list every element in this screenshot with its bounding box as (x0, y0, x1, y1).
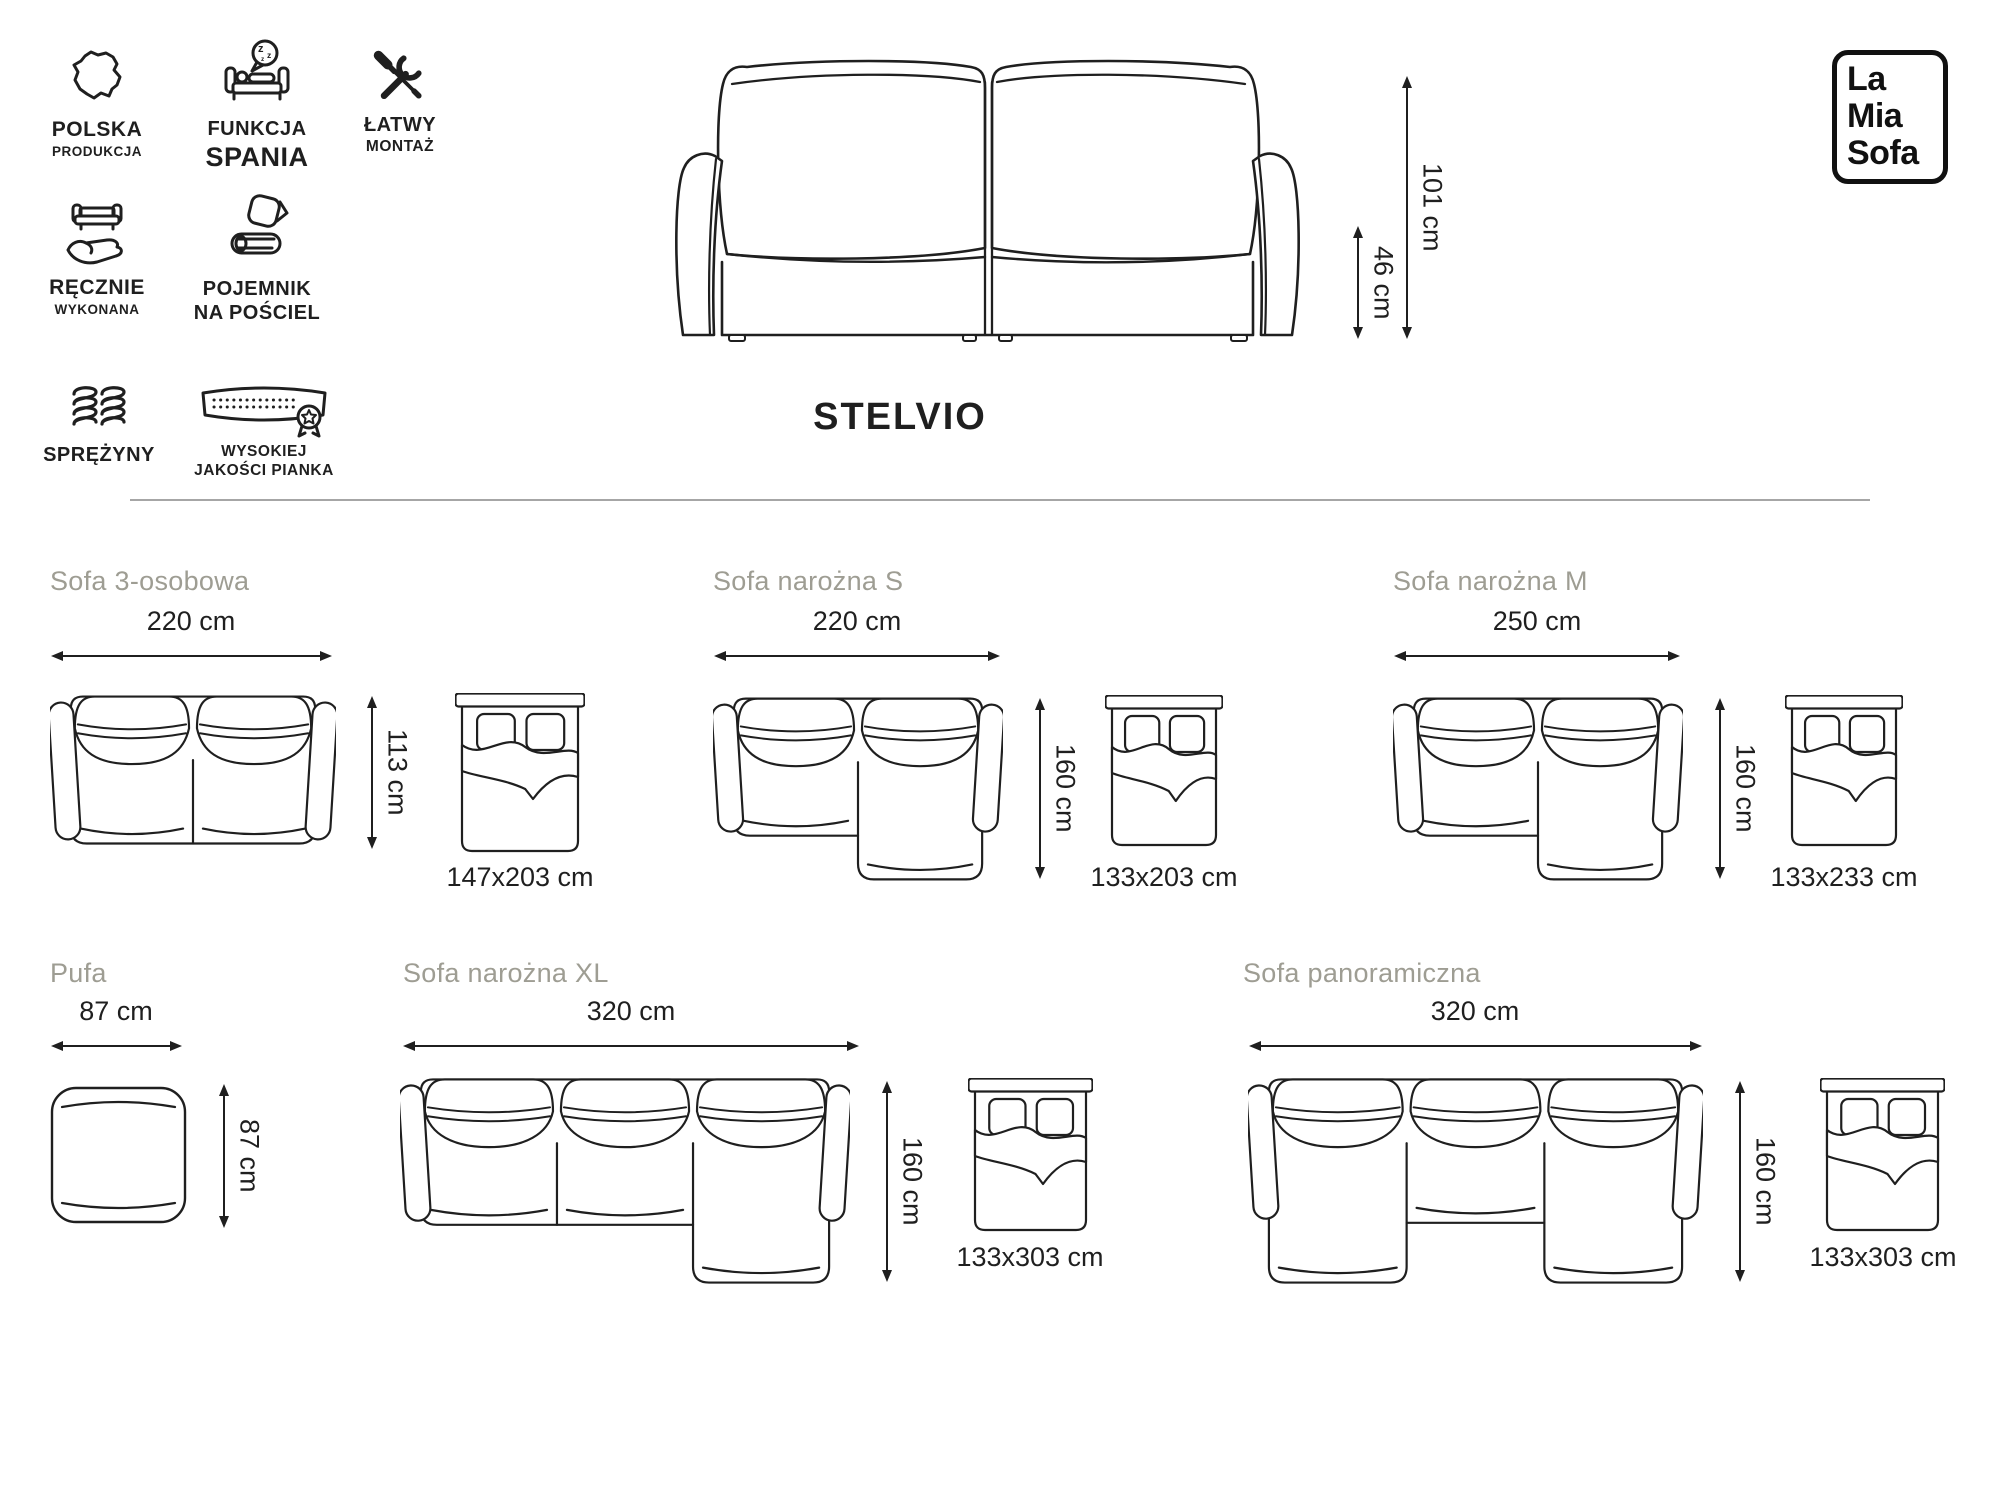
seat-height-arrow (1350, 225, 1366, 340)
feature-label: POLSKA (7, 118, 187, 142)
bed-icon (1785, 695, 1903, 847)
width-arrow (713, 648, 1001, 664)
divider-line (130, 499, 1870, 501)
width-arrow (50, 1038, 183, 1054)
bed-icon (1820, 1078, 1945, 1232)
bed-icon (968, 1078, 1093, 1232)
width-dimension: 250 cm (1437, 606, 1637, 637)
handmade-icon (60, 200, 134, 270)
feature-label: SPRĘŻYNY (9, 444, 189, 467)
feature-latwy-montaz: ŁATWY MONTAŻ (310, 42, 490, 156)
width-dimension: 220 cm (91, 606, 291, 637)
width-dimension: 320 cm (1375, 996, 1575, 1027)
feature-wysokiej-jakosci-pianka: WYSOKIEJ JAKOŚCI PIANKA (174, 378, 354, 480)
bed-icon (455, 693, 585, 853)
width-dimension: 320 cm (531, 996, 731, 1027)
svg-text:z: z (267, 50, 271, 60)
tools-icon (370, 46, 430, 108)
variant-title: Sofa 3-osobowa (50, 566, 249, 597)
total-height-arrow (1399, 75, 1415, 340)
depth-arrow (1712, 697, 1728, 880)
variant-title: Sofa panoramiczna (1243, 958, 1481, 989)
sofa-top-view (400, 1076, 850, 1286)
depth-dimension: 160 cm (1728, 697, 1762, 880)
feature-sprezyny: SPRĘŻYNY (9, 372, 189, 467)
sofa-top-view (50, 693, 336, 853)
springs-icon (67, 380, 131, 438)
feature-sublabel: JAKOŚCI PIANKA (174, 462, 354, 480)
main-sofa-drawing (665, 58, 1310, 344)
variant-title: Pufa (50, 958, 107, 989)
feature-recznie-wykonana: RĘCZNIE WYKONANA (7, 196, 187, 317)
bed-icon (1105, 695, 1223, 847)
feature-sublabel: NA POŚCIEL (167, 302, 347, 325)
width-arrow (402, 1038, 860, 1054)
sleep-function-icon: z z z (220, 38, 294, 112)
bed-size-label: 133x233 cm (1744, 862, 1944, 893)
svg-text:z: z (261, 56, 265, 63)
pouf-top-view (50, 1080, 187, 1230)
width-arrow (50, 648, 333, 664)
seat-height-dimension: 46 cm (1366, 225, 1400, 340)
depth-arrow (1732, 1080, 1748, 1283)
feature-label: POJEMNIK (167, 278, 347, 301)
width-arrow (1248, 1038, 1703, 1054)
width-dimension: 220 cm (757, 606, 957, 637)
depth-dimension: 160 cm (1048, 697, 1082, 880)
sofa-top-view (713, 695, 1003, 883)
total-height-dimension: 101 cm (1415, 75, 1449, 340)
feature-sublabel: WYKONANA (7, 302, 187, 317)
brand-logo-line: Mia (1847, 98, 1943, 135)
brand-logo: La Mia Sofa (1832, 50, 1948, 184)
sofa-top-view (1248, 1076, 1703, 1286)
bed-size-label: 147x203 cm (420, 862, 620, 893)
feature-sublabel: PRODUKCJA (7, 144, 187, 159)
feature-label: WYSOKIEJ (174, 443, 354, 461)
poland-map-icon (65, 48, 129, 112)
feature-sublabel: MONTAŻ (310, 138, 490, 156)
depth-arrow (364, 695, 380, 850)
page-title: STELVIO (750, 396, 1050, 439)
depth-dimension: 113 cm (380, 695, 414, 850)
depth-dimension: 87 cm (232, 1083, 266, 1229)
feature-label: RĘCZNIE (7, 276, 187, 300)
depth-dimension: 160 cm (1748, 1080, 1782, 1283)
variant-title: Sofa narożna M (1393, 566, 1588, 597)
depth-arrow (216, 1083, 232, 1229)
brand-logo-line: La (1847, 61, 1943, 98)
bedding-storage-icon (224, 194, 290, 272)
depth-arrow (879, 1080, 895, 1283)
bed-size-label: 133x303 cm (1783, 1242, 1983, 1273)
svg-text:z: z (258, 43, 264, 55)
foam-quality-icon (198, 376, 330, 438)
bed-size-label: 133x203 cm (1064, 862, 1264, 893)
depth-arrow (1032, 697, 1048, 880)
width-dimension: 87 cm (16, 996, 216, 1027)
width-arrow (1393, 648, 1681, 664)
infographic-canvas: POLSKA PRODUKCJA z z z FUNKCJA SPANIA ŁA… (0, 0, 2000, 1500)
feature-polska-produkcja: POLSKA PRODUKCJA (7, 40, 187, 159)
bed-size-label: 133x303 cm (930, 1242, 1130, 1273)
feature-pojemnik-na-posciel: POJEMNIK NA POŚCIEL (167, 192, 347, 325)
depth-dimension: 160 cm (895, 1080, 929, 1283)
sofa-top-view (1393, 695, 1683, 883)
brand-logo-line: Sofa (1847, 135, 1943, 172)
variant-title: Sofa narożna XL (403, 958, 609, 989)
feature-label: ŁATWY (310, 114, 490, 137)
variant-title: Sofa narożna S (713, 566, 903, 597)
